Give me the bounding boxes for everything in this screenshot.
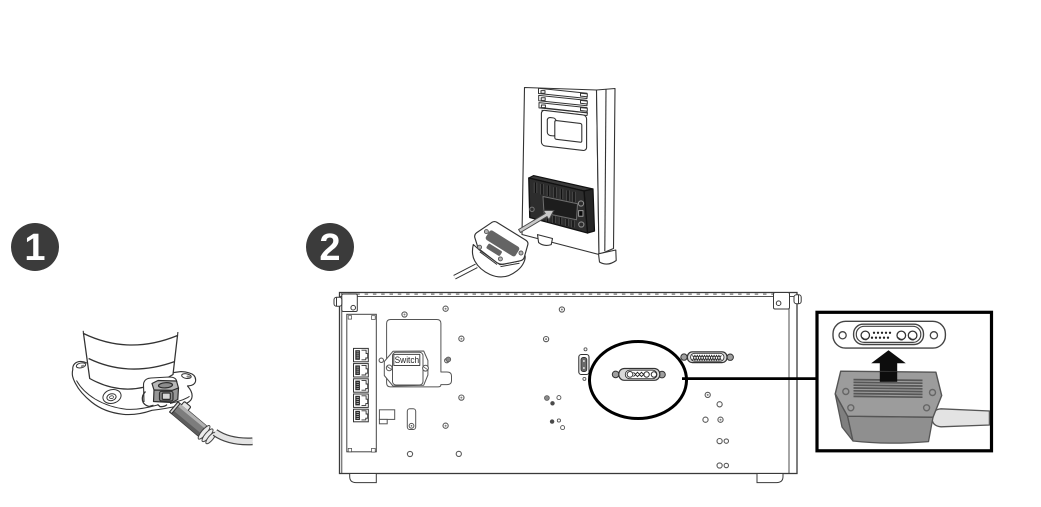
svg-text:Switch: Switch [395,355,420,365]
svg-text:2: 2 [319,227,340,269]
svg-text:1: 1 [24,227,45,269]
